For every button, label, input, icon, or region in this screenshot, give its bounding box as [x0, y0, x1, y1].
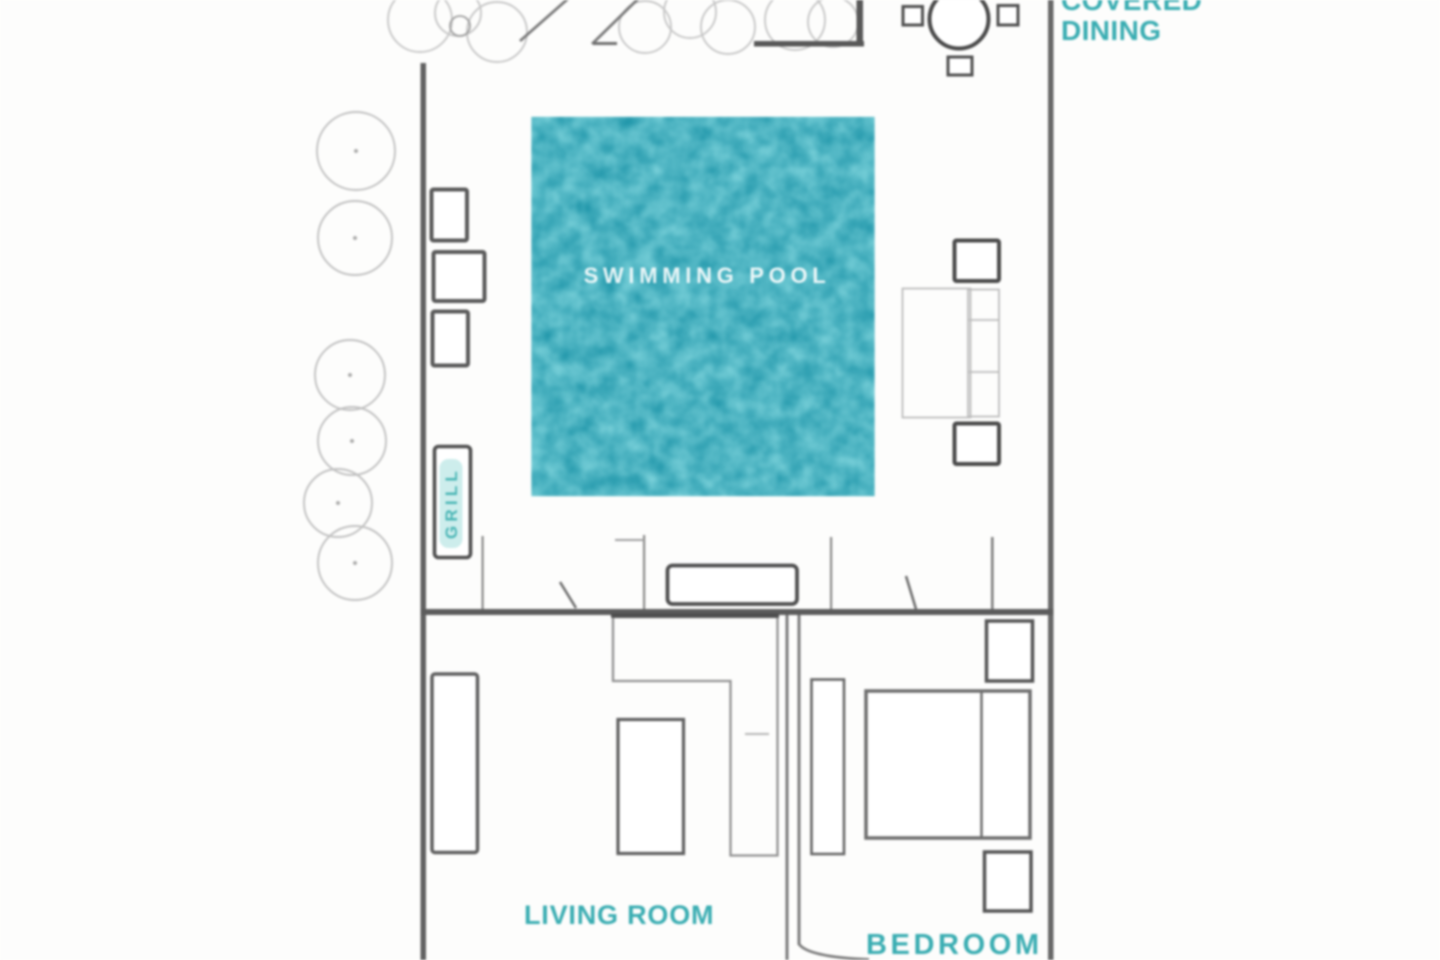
- svg-text:SWIMMING POOL: SWIMMING POOL: [584, 263, 831, 288]
- svg-text:GRILL: GRILL: [442, 467, 461, 539]
- svg-text:DINING: DINING: [1061, 15, 1161, 46]
- svg-text:BEDROOM: BEDROOM: [866, 929, 1043, 960]
- svg-text:COVERED: COVERED: [1061, 0, 1202, 16]
- svg-text:LIVING ROOM: LIVING ROOM: [524, 900, 714, 930]
